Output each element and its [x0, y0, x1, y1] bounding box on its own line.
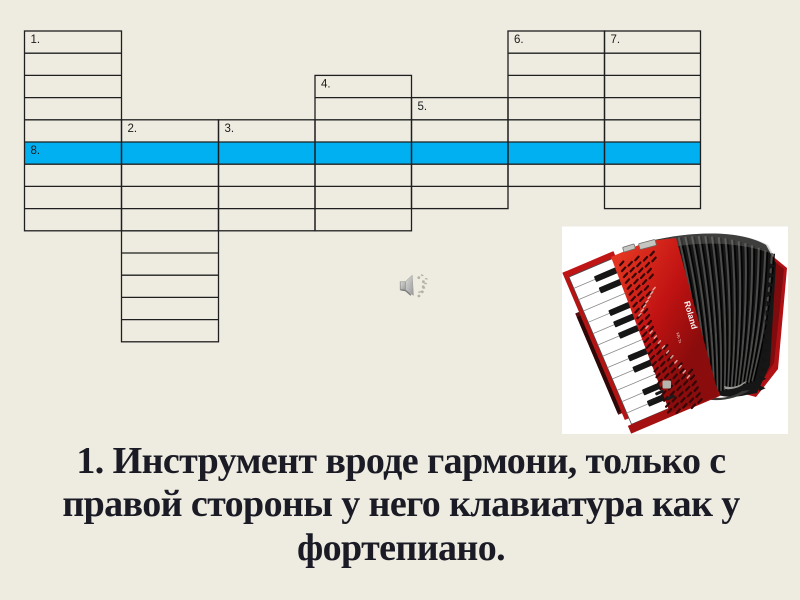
svg-text:5.: 5.: [418, 101, 428, 113]
svg-text:6.: 6.: [514, 34, 524, 46]
svg-text:1.: 1.: [31, 34, 41, 46]
svg-text:7.: 7.: [611, 34, 621, 46]
svg-text:3.: 3.: [225, 123, 235, 135]
svg-text:4.: 4.: [321, 79, 331, 91]
svg-text:8.: 8.: [31, 145, 41, 157]
svg-text:2.: 2.: [128, 123, 138, 135]
